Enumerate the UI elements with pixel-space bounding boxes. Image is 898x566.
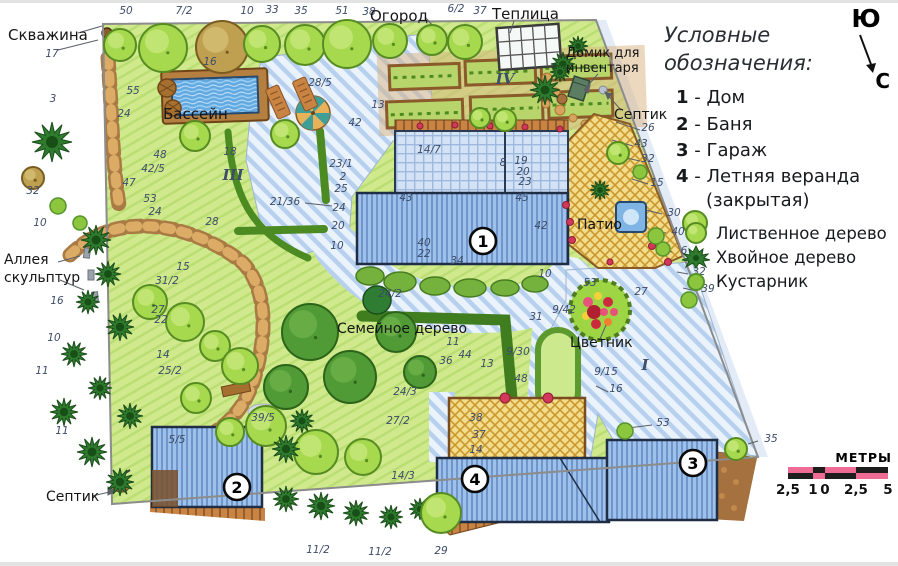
- measurement-number: 29: [434, 545, 448, 557]
- plan-label: Септик: [46, 489, 99, 505]
- deciduous-tree: [323, 20, 371, 68]
- measurement-number: 24/2: [378, 288, 402, 300]
- measurement-number: 13: [480, 358, 493, 370]
- deciduous-tree: [373, 24, 407, 58]
- measurement-number: 16: [609, 383, 623, 395]
- dark-deciduous-tree: [264, 365, 308, 409]
- compass-north-label: С: [838, 69, 894, 93]
- measurement-number: 22: [417, 248, 431, 260]
- measurement-number: 9/15: [594, 366, 618, 378]
- deciduous-tree: [104, 29, 136, 61]
- measurement-number: 14/3: [391, 470, 415, 482]
- svg-text:1: 1: [477, 232, 488, 251]
- measurement-number: 3: [50, 93, 57, 105]
- measurement-number: 51: [335, 5, 348, 17]
- measurement-number: 55: [126, 85, 140, 97]
- building-badge: 4: [462, 466, 488, 492]
- measurement-number: 33: [265, 4, 278, 16]
- deciduous-tree: [180, 121, 210, 151]
- plan-label: инвентаря: [566, 61, 639, 76]
- measurement-number: 10: [330, 240, 344, 252]
- measurement-number: 22: [154, 314, 168, 326]
- plan-label: Скважина: [8, 26, 88, 44]
- measurement-number: 5/5: [169, 434, 186, 446]
- deciduous-tree: [216, 418, 244, 446]
- legend-item-veranda: 4 - Летняя веранда: [676, 164, 890, 190]
- scale-ticks: 2,5 1 0 2,5 5: [782, 482, 894, 500]
- measurement-number: 50: [119, 5, 133, 17]
- legend-title: Условные обозначения:: [664, 22, 864, 77]
- house-terrace: [395, 131, 505, 195]
- measurement-number: 10: [33, 217, 47, 229]
- measurement-number: 48: [514, 373, 528, 385]
- compass-south-label: Ю: [838, 6, 894, 31]
- measurement-number: 45: [515, 192, 529, 204]
- conifer-tree: [88, 376, 112, 400]
- measurement-number: 35: [294, 5, 308, 17]
- deciduous-tree: [470, 108, 490, 128]
- deciduous-tree: [607, 142, 629, 164]
- measurement-number: 18: [223, 146, 237, 158]
- measurement-number: 20: [331, 220, 345, 232]
- conifer-tree: [50, 398, 78, 426]
- conifer-tree: [343, 500, 369, 526]
- measurement-number: 53: [583, 277, 596, 289]
- landscape-plan-page: 1234 507/210333551386/237173321016101111…: [0, 0, 898, 566]
- measurement-number: 25: [334, 183, 348, 195]
- legend-symbol-conifer: Хвойное дерево: [680, 245, 890, 269]
- measurement-number: 24: [332, 202, 345, 214]
- measurement-number: 24/3: [393, 386, 417, 398]
- measurement-number: 11/2: [306, 544, 330, 556]
- measurement-number: 53: [656, 417, 669, 429]
- compass: Ю С: [838, 6, 894, 93]
- conifer-tree: [61, 341, 87, 367]
- measurement-number: 6/2: [448, 3, 465, 15]
- scale-units-label: МЕТРЫ: [782, 450, 894, 465]
- plan-label: Огород: [370, 7, 428, 25]
- plan-label: Домик для: [566, 46, 639, 61]
- shrub: [73, 216, 87, 230]
- plan-label: скульптур: [4, 270, 80, 286]
- measurement-number: 35: [764, 433, 778, 445]
- measurement-number: 9/30: [506, 346, 530, 358]
- deciduous-tree: [417, 25, 447, 55]
- veranda-building: [437, 398, 609, 522]
- measurement-number: 28: [205, 216, 219, 228]
- plan-label: Септик: [614, 107, 667, 123]
- measurement-number: 28/5: [308, 77, 332, 89]
- deciduous-tree: [166, 303, 204, 341]
- measurement-number: 21/36: [270, 196, 301, 208]
- legend-item-garage: 3 - Гараж: [676, 138, 890, 164]
- measurement-number: 11/2: [368, 546, 392, 558]
- deciduous-tree: [139, 24, 187, 72]
- measurement-number: 27/2: [386, 415, 410, 427]
- measurement-number: 31: [529, 311, 542, 323]
- deciduous-tree: [294, 430, 338, 474]
- measurement-number: 44: [458, 349, 471, 361]
- measurement-number: 31/2: [155, 275, 179, 287]
- measurement-number: 42: [348, 117, 362, 129]
- plan-label: Бассейн: [163, 105, 228, 123]
- measurement-number: 15: [176, 261, 190, 273]
- measurement-number: 11: [55, 425, 68, 437]
- deciduous-tree: [244, 26, 280, 62]
- conifer-tree: [307, 492, 335, 520]
- zone-numeral: I: [640, 356, 649, 374]
- measurement-number: 37: [472, 429, 486, 441]
- building-badge: 2: [224, 474, 250, 500]
- measurement-number: 10: [240, 5, 254, 17]
- svg-text:4: 4: [469, 470, 480, 489]
- legend-symbol-shrub: Кустарник: [680, 269, 890, 293]
- measurement-number: 14: [469, 444, 482, 456]
- measurement-number: 25/2: [158, 365, 182, 377]
- greenhouse: [497, 24, 562, 70]
- measurement-number: 53: [143, 193, 156, 205]
- measurement-number: 11: [446, 336, 459, 348]
- measurement-number: 39/5: [251, 412, 275, 424]
- measurement-number: 48: [153, 149, 167, 161]
- measurement-number: 10: [538, 268, 552, 280]
- deciduous-tree: [181, 383, 211, 413]
- measurement-number: 34: [450, 255, 463, 267]
- measurement-number: 27: [634, 286, 648, 298]
- deciduous-tree: [448, 25, 482, 59]
- conifer-tree: [379, 505, 403, 529]
- measurement-number: 42/5: [141, 163, 165, 175]
- deciduous-tree: [271, 120, 299, 148]
- measurement-number: 11: [35, 365, 48, 377]
- measurement-number: 14: [156, 349, 169, 361]
- shrub: [50, 198, 66, 214]
- measurement-number: 9/42: [552, 304, 576, 316]
- building-badge: 3: [680, 450, 706, 476]
- dark-deciduous-tree: [404, 356, 436, 388]
- measurement-number: 16: [203, 56, 217, 68]
- plan-label: Цветник: [570, 335, 633, 351]
- plan-label: Семейное дерево: [337, 321, 467, 337]
- plan-label: Аллея: [4, 252, 49, 268]
- deciduous-tree: [494, 109, 516, 131]
- flower-bed: [570, 280, 630, 340]
- deciduous-tree: [421, 493, 461, 533]
- conifer-tree: [32, 122, 72, 162]
- deciduous-tree: [222, 348, 258, 384]
- measurement-number: 7/2: [176, 5, 193, 17]
- zone-numeral: IV: [495, 70, 516, 88]
- measurement-number: 23: [518, 176, 531, 188]
- measurement-number: 47: [122, 177, 136, 189]
- measurement-number: 42: [534, 220, 548, 232]
- measurement-number: 43: [634, 138, 647, 150]
- dark-deciduous-tree: [282, 304, 338, 360]
- legend-item-veranda-cont: (закрытая): [706, 190, 890, 212]
- conifer-tree-icon: [680, 245, 712, 269]
- legend-symbol-label: Лиственное дерево: [716, 224, 887, 243]
- zone-numeral: III: [221, 166, 244, 184]
- measurement-number: 32: [26, 185, 40, 197]
- shrub: [633, 165, 647, 179]
- measurement-number: 8: [500, 157, 507, 169]
- scale-bar-graphic: [788, 467, 888, 479]
- sculptures: [83, 248, 98, 303]
- deciduous-tree: [725, 438, 747, 460]
- measurement-number: 10: [47, 332, 61, 344]
- shrub-icon: [680, 269, 712, 293]
- legend-item-bathhouse: 2 - Баня: [676, 112, 890, 138]
- measurement-number: 14/7: [417, 144, 441, 156]
- measurement-number: 43: [399, 192, 412, 204]
- legend-symbol-label: Кустарник: [716, 272, 808, 291]
- plan-label: Теплица: [491, 5, 559, 23]
- measurement-number: 36: [439, 355, 453, 367]
- measurement-number: 24: [117, 108, 130, 120]
- shrub: [617, 423, 633, 439]
- measurement-number: 24: [148, 206, 161, 218]
- svg-text:2: 2: [231, 478, 242, 497]
- measurement-number: 32: [641, 153, 655, 165]
- measurement-number: 37: [473, 5, 487, 17]
- measurement-number: 26: [641, 122, 655, 134]
- measurement-number: 13: [371, 99, 384, 111]
- conifer-tree: [77, 437, 107, 467]
- measurement-number: 16: [50, 295, 64, 307]
- svg-text:3: 3: [687, 454, 698, 473]
- legend-symbol-deciduous: Лиственное дерево: [680, 221, 890, 245]
- measurement-number: 15: [650, 177, 664, 189]
- measurement-number: 17: [45, 48, 59, 60]
- plan-label: Патио: [577, 217, 622, 233]
- measurement-number: 38: [469, 412, 483, 424]
- deciduous-tree: [285, 25, 325, 65]
- shrub: [681, 292, 697, 308]
- deciduous-tree: [345, 439, 381, 475]
- scale-bar: МЕТРЫ 2,5 1 0 2,5 5: [782, 450, 894, 500]
- building-badge: 1: [470, 228, 496, 254]
- deciduous-tree-icon: [680, 221, 712, 245]
- legend-symbol-label: Хвойное дерево: [716, 248, 856, 267]
- measurement-number: 23/1: [329, 158, 353, 170]
- dark-deciduous-tree: [324, 351, 376, 403]
- measurement-number: 2: [340, 171, 347, 183]
